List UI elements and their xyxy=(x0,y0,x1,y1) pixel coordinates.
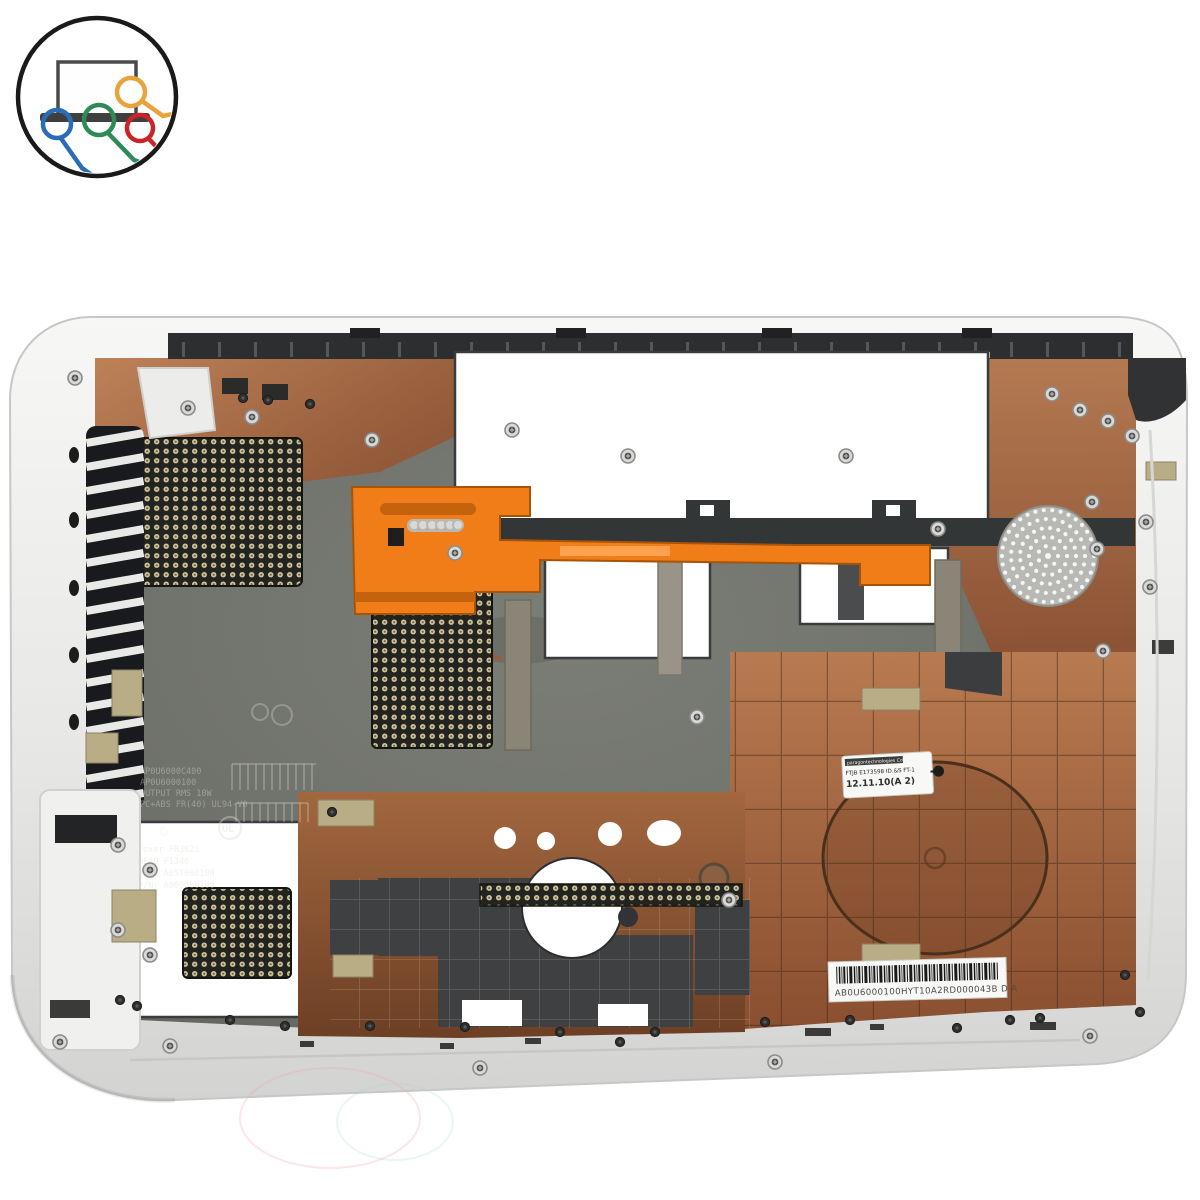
speaker-hole xyxy=(1044,544,1048,548)
screw-icon xyxy=(621,449,635,463)
barcode-sticker: AB0U6000100HYT10A2RD000043B D A xyxy=(828,957,1018,1002)
speaker-hole xyxy=(1065,554,1069,558)
screw-icon xyxy=(505,423,519,437)
speaker-hole xyxy=(1012,523,1016,527)
screw-black-icon xyxy=(1120,970,1129,979)
speaker-hole xyxy=(1012,585,1016,589)
rim-vent-slot xyxy=(69,580,79,596)
speaker-hole xyxy=(1058,539,1062,543)
speaker-hole xyxy=(1052,517,1056,521)
speaker-hole xyxy=(1034,539,1038,543)
molded-line: Foxer FR3021 xyxy=(138,845,199,855)
latch-slot xyxy=(380,503,476,515)
speaker-hole xyxy=(1063,562,1067,566)
speaker-hole xyxy=(1058,510,1062,514)
rim-vent-slot xyxy=(69,714,79,730)
speaker-hole xyxy=(1021,542,1025,546)
speaker-hole xyxy=(1009,550,1013,554)
speaker-hole xyxy=(1052,590,1056,594)
screw-black-icon xyxy=(650,1027,659,1036)
speaker-hole xyxy=(1027,522,1031,526)
screw-icon xyxy=(111,838,125,852)
speaker-hole xyxy=(1025,535,1029,539)
molded-line: AP0U6000100 xyxy=(140,778,196,788)
speaker-hole xyxy=(1021,581,1025,585)
center-panel xyxy=(298,792,750,1038)
foam-pad xyxy=(862,688,920,710)
screw-black-icon xyxy=(760,1017,769,1026)
speaker-hole xyxy=(1074,554,1078,558)
screw-icon xyxy=(1101,414,1115,428)
speaker-hole xyxy=(1080,523,1084,527)
speaker-hole xyxy=(1058,598,1062,602)
speaker-hole xyxy=(1027,586,1031,590)
speaker-hole xyxy=(1032,530,1036,534)
speaker-hole xyxy=(1015,534,1019,538)
clip xyxy=(1152,640,1174,654)
speaker-hole xyxy=(1034,569,1038,573)
speaker-hole xyxy=(1018,558,1022,562)
screw-icon xyxy=(143,948,157,962)
speaker-hole xyxy=(1050,508,1054,512)
speaker-hole xyxy=(1027,554,1031,558)
round-opening xyxy=(522,858,622,958)
screw-black-icon xyxy=(305,399,314,408)
speaker-hole xyxy=(1061,588,1065,592)
speaker-hole xyxy=(1037,550,1041,554)
vent-mesh-strip xyxy=(480,884,742,906)
screw-icon xyxy=(163,1039,177,1053)
speaker-hole xyxy=(1018,517,1022,521)
speaker-hole xyxy=(1073,562,1077,566)
speaker-hole xyxy=(1021,566,1025,570)
speaker-hole xyxy=(1050,600,1054,604)
vent-mesh-small xyxy=(183,888,291,978)
ul-mark-icon: UL xyxy=(222,824,234,835)
screw-icon xyxy=(722,893,736,907)
rim-vent-slot xyxy=(69,512,79,528)
speaker-hole xyxy=(1083,554,1087,558)
speaker-hole xyxy=(1082,545,1086,549)
screw-black-icon xyxy=(1135,1007,1144,1016)
screw-icon xyxy=(839,449,853,463)
screw-icon xyxy=(1096,644,1110,658)
spec-sticker: paragontechnologies Co.,Ltd FTJB E173598… xyxy=(842,751,946,798)
corner-latch-piece xyxy=(138,368,215,438)
speaker-hole xyxy=(1033,598,1037,602)
speaker-hole xyxy=(1063,546,1067,550)
screw-icon xyxy=(1139,515,1153,529)
port-block xyxy=(86,733,118,763)
screw-icon xyxy=(768,1055,782,1069)
speaker-hole xyxy=(1037,558,1041,562)
screw-black-icon xyxy=(238,393,247,402)
screw-icon xyxy=(1143,580,1157,594)
speaker-hole xyxy=(1011,567,1015,571)
speaker-hole xyxy=(1029,546,1033,550)
screw-black-icon xyxy=(460,1022,469,1031)
speaker-hole xyxy=(1033,510,1037,514)
speaker-hole xyxy=(1035,518,1039,522)
screw-icon xyxy=(473,1061,487,1075)
speaker-hole xyxy=(1044,564,1048,568)
screw-icon xyxy=(1083,1029,1097,1043)
speaker-hole xyxy=(1079,537,1083,541)
port-opening xyxy=(55,815,117,843)
foam-pad xyxy=(333,955,373,977)
speaker-hole xyxy=(1068,524,1072,528)
speaker-hole xyxy=(1056,528,1060,532)
speaker-hole xyxy=(1032,578,1036,582)
speaker-hole xyxy=(1009,558,1013,562)
speaker-hole xyxy=(1007,530,1011,534)
speaker-hole xyxy=(1001,545,1005,549)
screw-icon xyxy=(181,401,195,415)
speaker-hole xyxy=(1080,585,1084,589)
speaker-hole xyxy=(1069,538,1073,542)
speaker-hole xyxy=(1050,572,1054,576)
speaker-hole xyxy=(1042,572,1046,576)
speaker-hole xyxy=(1029,562,1033,566)
latch-spring xyxy=(408,520,463,531)
speaker-hole xyxy=(1074,517,1078,521)
screw-icon xyxy=(1085,495,1099,509)
speaker-hole xyxy=(1042,508,1046,512)
molded-line: OUTPUT RMS 10W xyxy=(140,789,213,799)
speaker-hole xyxy=(1052,562,1056,566)
screw-black-icon xyxy=(263,395,272,404)
speaker-hole xyxy=(1085,578,1089,582)
screw-icon xyxy=(245,410,259,424)
speaker-hole xyxy=(1035,589,1039,593)
speaker-hole xyxy=(1048,526,1052,530)
speaker-hole xyxy=(1068,584,1072,588)
speaker-hole xyxy=(1048,582,1052,586)
speaker-hole xyxy=(1082,562,1086,566)
speaker-hole xyxy=(1018,591,1022,595)
screw-black-icon xyxy=(225,1015,234,1024)
orange-node-icon xyxy=(117,78,145,106)
reflection xyxy=(337,1084,453,1160)
laptop-bottom-case: AP0U6000C400 AP0U6000100 OUTPUT RMS 10W … xyxy=(10,317,1187,1168)
speaker-hole xyxy=(1040,581,1044,585)
speaker-hole xyxy=(1025,595,1029,599)
screw-black-icon xyxy=(845,1015,854,1024)
metal-bracket xyxy=(318,800,374,826)
molded-line: PC+ABS FR(40) UL94-V0 xyxy=(140,800,247,810)
screw-icon xyxy=(143,863,157,877)
port-block xyxy=(112,670,142,716)
speaker-hole xyxy=(1011,541,1015,545)
speaker-hole xyxy=(1042,535,1046,539)
speaker-hole xyxy=(1015,574,1019,578)
screw-black-icon xyxy=(952,1023,961,1032)
screw-black-icon xyxy=(132,1001,141,1010)
speaker-hole xyxy=(1073,546,1077,550)
molded-line: P/N: A009000100 xyxy=(138,881,215,891)
screw-icon xyxy=(365,433,379,447)
molded-line: AP0U6000C400 xyxy=(140,767,201,777)
rim-vent-slot xyxy=(69,447,79,463)
speaker-hole xyxy=(1069,570,1073,574)
screw-icon xyxy=(931,522,945,536)
screw-black-icon xyxy=(1005,1015,1014,1024)
screw-black-icon xyxy=(280,1021,289,1030)
speaker-hole xyxy=(1025,573,1029,577)
screw-icon xyxy=(111,923,125,937)
speaker-hole xyxy=(1058,569,1062,573)
screw-black-icon xyxy=(365,1021,374,1030)
speaker-hole xyxy=(1052,546,1056,550)
speaker-hole xyxy=(1074,591,1078,595)
speaker-hole xyxy=(1056,580,1060,584)
speaker-hole xyxy=(1061,520,1065,524)
screw-icon xyxy=(1045,387,1059,401)
product-photo: AP0U6000C400 AP0U6000100 OUTPUT RMS 10W … xyxy=(0,0,1200,1200)
speaker-hole xyxy=(1066,513,1070,517)
speaker-hole xyxy=(1001,562,1005,566)
screw-icon xyxy=(690,710,704,724)
speaker-hole xyxy=(1089,571,1093,575)
screw-icon xyxy=(448,546,462,560)
rim-vent-slot xyxy=(69,647,79,663)
speaker-hole xyxy=(1091,562,1095,566)
speaker-hole xyxy=(1056,554,1060,558)
speaker-hole xyxy=(1066,595,1070,599)
speaker-hole xyxy=(1063,576,1067,580)
screw-icon xyxy=(53,1035,67,1049)
speaker-grille xyxy=(998,506,1098,606)
screw-black-icon xyxy=(327,807,336,816)
speaker-hole xyxy=(1003,571,1007,575)
speaker-hole xyxy=(1018,550,1022,554)
screw-black-icon xyxy=(1035,1013,1044,1022)
speaker-hole xyxy=(1040,527,1044,531)
speaker-hole xyxy=(1063,532,1067,536)
screw-black-icon xyxy=(555,1027,564,1036)
vent-mesh-large xyxy=(128,438,302,586)
screw-icon xyxy=(1125,429,1139,443)
speaker-hole xyxy=(1025,513,1029,517)
screw-icon xyxy=(1090,542,1104,556)
speaker-hole xyxy=(1042,600,1046,604)
speaker-hole xyxy=(1079,571,1083,575)
speaker-hole xyxy=(1007,578,1011,582)
shop-logo xyxy=(18,18,181,191)
speaker-hole xyxy=(1085,530,1089,534)
screw-icon xyxy=(1073,403,1087,417)
speaker-hole xyxy=(1074,578,1078,582)
latch-slot xyxy=(50,1000,90,1018)
speaker-hole xyxy=(1000,554,1004,558)
screw-black-icon xyxy=(615,1037,624,1046)
speaker-hole xyxy=(1044,591,1048,595)
speaker-hole xyxy=(1089,537,1093,541)
recycle-icon: ♲ xyxy=(158,821,168,841)
screw-icon xyxy=(68,371,82,385)
screw-black-icon xyxy=(115,995,124,1004)
speaker-hole xyxy=(1074,530,1078,534)
product-image: AP0U6000C400 AP0U6000100 OUTPUT RMS 10W … xyxy=(0,0,1200,1200)
clip xyxy=(222,378,248,394)
speaker-hole xyxy=(1003,537,1007,541)
speaker-hole xyxy=(1050,535,1054,539)
speaker-hole xyxy=(1021,527,1025,531)
speaker-hole xyxy=(1044,517,1048,521)
